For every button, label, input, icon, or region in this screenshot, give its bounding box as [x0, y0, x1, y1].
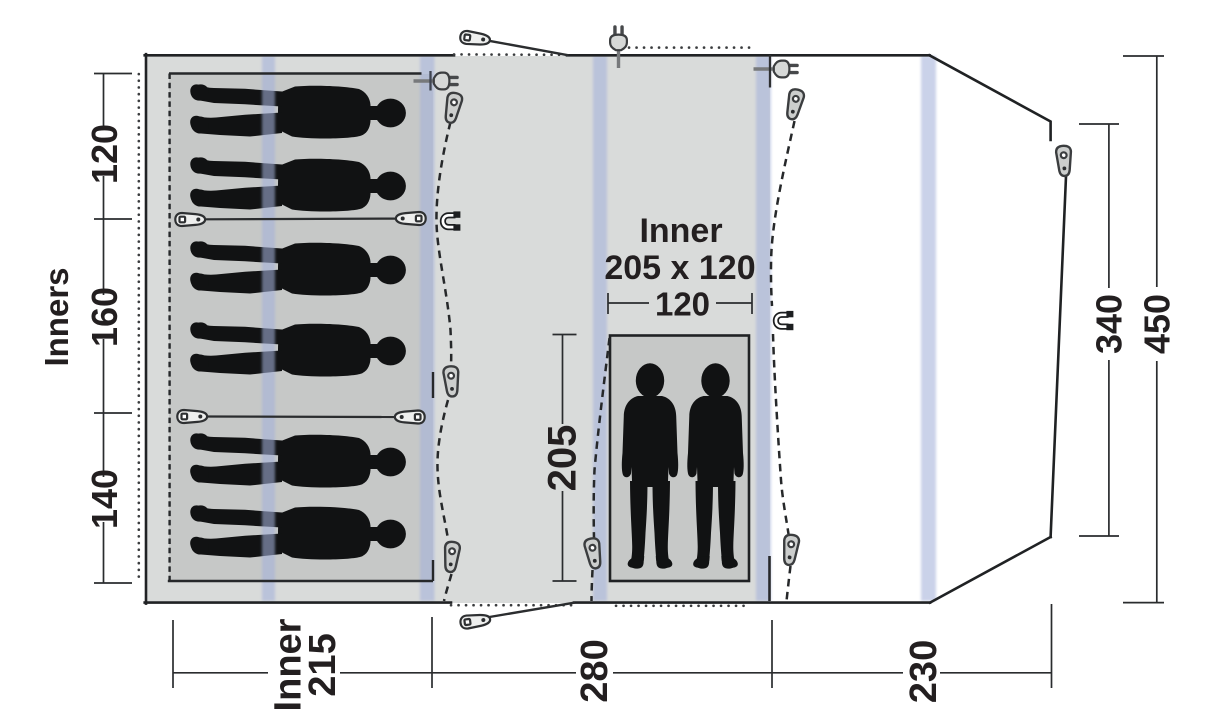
- svg-text:Inners: Inners: [38, 267, 75, 366]
- svg-text:340: 340: [1089, 294, 1130, 354]
- svg-text:280: 280: [574, 639, 616, 702]
- svg-text:140: 140: [84, 469, 125, 529]
- svg-text:205: 205: [541, 425, 585, 492]
- svg-text:120: 120: [84, 124, 125, 184]
- svg-text:Inner: Inner: [639, 212, 722, 250]
- svg-text:205 x 120: 205 x 120: [604, 249, 755, 287]
- svg-text:450: 450: [1137, 294, 1178, 354]
- svg-text:120: 120: [655, 286, 710, 323]
- svg-text:230: 230: [903, 640, 945, 703]
- svg-text:160: 160: [84, 287, 125, 347]
